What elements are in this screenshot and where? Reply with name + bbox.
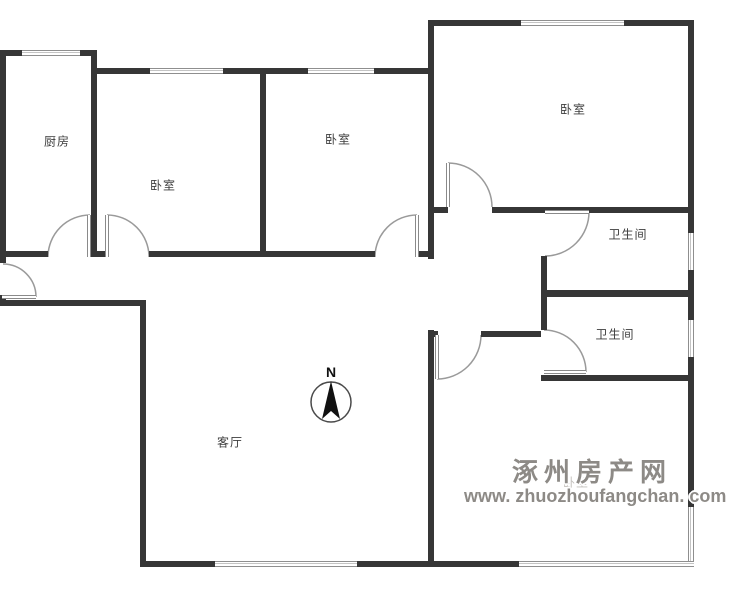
bedroom-top-right-window bbox=[521, 20, 624, 26]
watermark-site-name: 涿州房产网 bbox=[464, 459, 720, 485]
bedroom-middle-window bbox=[308, 68, 374, 74]
bathroom-upper-door-leaf bbox=[545, 210, 589, 214]
bathroom-lower-door-arc bbox=[544, 330, 586, 372]
kitchen-window bbox=[22, 50, 80, 56]
corner-window-right bbox=[688, 507, 694, 563]
kitchen-door-arc bbox=[48, 215, 90, 257]
wall-bottom-3 bbox=[431, 561, 519, 567]
bedroom-middle-label: 卧室 bbox=[325, 131, 351, 148]
wall-bathroom-lower-bottom bbox=[541, 375, 694, 381]
bedroom-middle-door-leaf bbox=[415, 215, 419, 257]
wall-corridor-top-right bbox=[492, 207, 694, 213]
wall-hall-kitchen-seg bbox=[0, 251, 48, 257]
wall-bathroom-divider bbox=[541, 290, 694, 297]
bathroom-lower-label: 卫生间 bbox=[595, 326, 634, 343]
living-room-window bbox=[215, 561, 357, 567]
wall-left-outer bbox=[0, 50, 6, 263]
wall-bottom-1 bbox=[140, 561, 215, 567]
bathroom-upper-window bbox=[688, 233, 694, 270]
wall-bedroom2-3-divider bbox=[428, 20, 434, 259]
wall-hall-stub-2 bbox=[417, 251, 434, 257]
wall-bottomright-top bbox=[481, 331, 541, 337]
bedroom-top-right-door-leaf bbox=[446, 163, 450, 207]
bedroom-left-window bbox=[150, 68, 223, 74]
bathroom-upper-door-arc bbox=[545, 212, 589, 256]
wall-bottom-2 bbox=[357, 561, 431, 567]
compass-north-label: N bbox=[326, 364, 336, 380]
compass-icon bbox=[309, 378, 353, 424]
wall-bathroom-lower-left bbox=[541, 297, 547, 330]
bedroom-left-door-leaf bbox=[105, 215, 109, 257]
wall-living-left bbox=[140, 300, 146, 567]
living-room-label: 客厅 bbox=[217, 434, 243, 451]
wall-hall-main bbox=[149, 251, 375, 257]
bedroom-left-door-arc bbox=[107, 215, 149, 257]
wall-kitchen-divider bbox=[91, 50, 97, 257]
wall-entry-bottom bbox=[0, 300, 146, 306]
wall-corridor-top-left-stub bbox=[428, 207, 448, 213]
bedroom-middle-door-arc bbox=[375, 215, 417, 257]
bedroom-bottom-right-door-leaf bbox=[435, 335, 439, 379]
entry-door-leaf bbox=[2, 295, 36, 299]
kitchen-door-leaf bbox=[87, 215, 91, 257]
wall-bathroom-upper-left bbox=[541, 256, 547, 291]
bathroom-lower-door-leaf bbox=[544, 370, 586, 374]
bedroom-left-label: 卧室 bbox=[150, 177, 176, 194]
bedroom-top-right-door-arc bbox=[448, 163, 492, 207]
bedroom-bottom-right-door-arc bbox=[437, 335, 481, 379]
watermark-site-url: www. zhuozhoufangchan. com bbox=[464, 487, 720, 505]
entry-door-arc bbox=[3, 264, 36, 297]
kitchen-label: 厨房 bbox=[44, 133, 70, 150]
floor-plan: 厨房 卧室 卧室 卧室 卫生间 卫生间 客厅 卧室 N 涿州房产网 www. z… bbox=[0, 0, 744, 600]
wall-bedroom1-2-divider bbox=[260, 68, 266, 257]
bathroom-lower-window bbox=[688, 320, 694, 357]
wall-livingroom-divider bbox=[428, 330, 434, 567]
watermark: 涿州房产网 www. zhuozhoufangchan. com bbox=[464, 459, 720, 505]
bathroom-upper-label: 卫生间 bbox=[608, 226, 647, 243]
corner-window-bottom bbox=[519, 561, 694, 567]
bedroom-top-right-label: 卧室 bbox=[560, 101, 586, 118]
